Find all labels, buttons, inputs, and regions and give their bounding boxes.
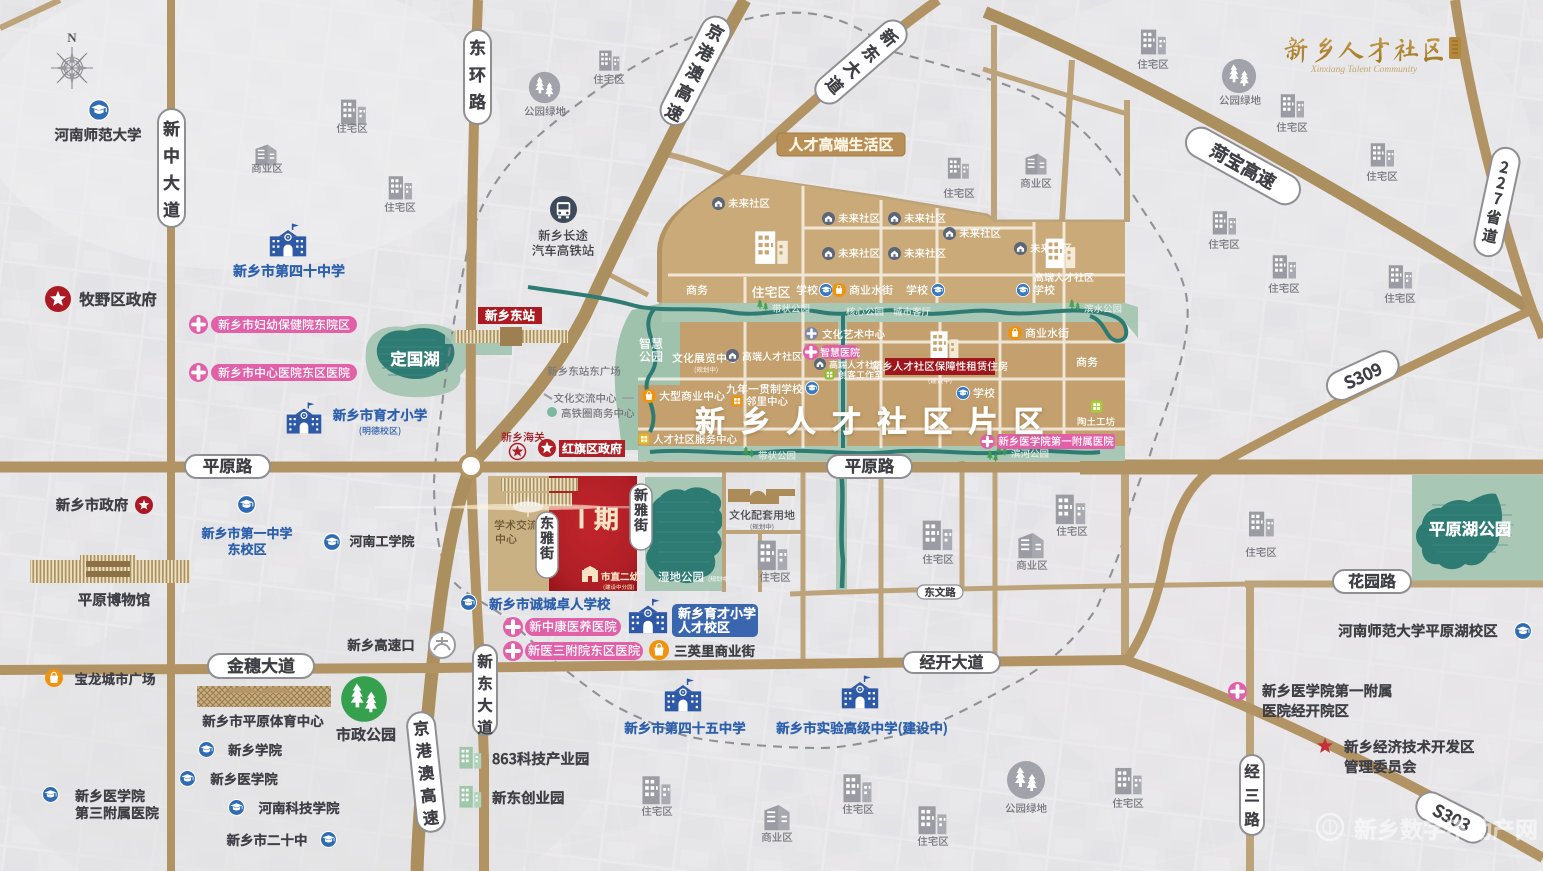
svg-text:人才校区: 人才校区 <box>677 617 730 636</box>
svg-text:智慧医院: 智慧医院 <box>820 344 860 359</box>
svg-text:住宅区: 住宅区 <box>384 200 416 215</box>
svg-text:住宅区: 住宅区 <box>759 570 791 585</box>
svg-text:汽车高铁站: 汽车高铁站 <box>532 240 595 259</box>
svg-text:东文路: 东文路 <box>924 585 956 600</box>
svg-text:新乡市诚城卓人学校: 新乡市诚城卓人学校 <box>489 593 611 613</box>
svg-text:商业水街: 商业水街 <box>849 282 893 298</box>
svg-text:未来社区: 未来社区 <box>838 211 880 226</box>
svg-text:新乡海关: 新乡海关 <box>501 429 545 445</box>
svg-text:住宅区: 住宅区 <box>1268 281 1300 296</box>
svg-text:经开大道: 经开大道 <box>918 649 983 673</box>
svg-text:湿地公园: 湿地公园 <box>658 569 704 585</box>
svg-text:新乡市育才小学: 新乡市育才小学 <box>333 404 428 424</box>
svg-text:定国湖: 定国湖 <box>389 346 440 370</box>
svg-text:新乡高速口: 新乡高速口 <box>347 634 415 654</box>
svg-text:(规划中): (规划中) <box>694 364 718 374</box>
svg-text:住宅区: 住宅区 <box>751 282 790 301</box>
svg-text:新乡东站: 新乡东站 <box>485 305 536 324</box>
svg-text:N: N <box>67 30 77 45</box>
svg-text:(建设中分园): (建设中分园) <box>603 583 634 591</box>
svg-text:863科技产业园: 863科技产业园 <box>492 748 589 769</box>
svg-text:(规划中): (规划中) <box>750 521 774 531</box>
svg-text:住宅区: 住宅区 <box>842 802 874 817</box>
svg-text:人才高端生活区: 人才高端生活区 <box>787 134 893 155</box>
svg-text:新乡市平原体育中心: 新乡市平原体育中心 <box>202 710 324 730</box>
svg-text:公园: 公园 <box>639 348 663 365</box>
svg-text:管理委员会: 管理委员会 <box>1344 756 1417 777</box>
svg-text:带状公园: 带状公园 <box>758 448 796 462</box>
svg-text:市政公园: 市政公园 <box>336 724 396 745</box>
svg-text:医院经开院区: 医院经开院区 <box>1262 700 1349 721</box>
svg-text:新医三附院东区医院: 新医三附院东区医院 <box>528 640 641 659</box>
svg-text:东环路: 东环路 <box>469 34 487 113</box>
svg-text:新雅街: 新雅街 <box>633 485 648 535</box>
svg-text:住宅区: 住宅区 <box>922 552 954 567</box>
svg-text:新乡数字不动产网: 新乡数字不动产网 <box>1354 811 1538 845</box>
svg-text:新乡市二十中: 新乡市二十中 <box>227 829 308 849</box>
svg-text:带状公园: 带状公园 <box>772 301 810 315</box>
svg-text:商业水街: 商业水街 <box>1025 325 1069 341</box>
svg-text:文化交流中心: 文化交流中心 <box>554 391 617 406</box>
svg-text:公园绿地: 公园绿地 <box>1005 801 1047 816</box>
svg-text:公园绿地: 公园绿地 <box>1219 93 1261 108</box>
svg-text:新乡市政府: 新乡市政府 <box>56 494 129 515</box>
svg-text:Ⅰ期: Ⅰ期 <box>569 506 619 534</box>
svg-text:住宅区: 住宅区 <box>943 186 975 201</box>
svg-text:三英里商业街: 三英里商业街 <box>674 640 755 660</box>
svg-text:(明德校区): (明德校区) <box>359 424 401 437</box>
svg-text:宝龙城市广场: 宝龙城市广场 <box>75 668 156 688</box>
svg-text:住宅区: 住宅区 <box>1245 545 1277 560</box>
svg-text:陶土工坊: 陶土工坊 <box>1077 414 1116 428</box>
svg-text:商务: 商务 <box>1076 354 1098 370</box>
svg-text:平原路: 平原路 <box>845 453 895 477</box>
svg-text:住宅区: 住宅区 <box>1137 57 1169 72</box>
svg-text:住宅区: 住宅区 <box>593 72 625 87</box>
svg-text:城市客厅: 城市客厅 <box>893 304 932 318</box>
svg-text:东校区: 东校区 <box>227 539 266 558</box>
svg-text:新乡市第四十五中学: 新乡市第四十五中学 <box>624 717 746 737</box>
svg-text:新乡东站东广场: 新乡东站东广场 <box>547 364 621 379</box>
svg-text:河南师范大学: 河南师范大学 <box>54 124 142 145</box>
svg-text:河南师范大学平原湖校区: 河南师范大学平原湖校区 <box>1337 620 1498 641</box>
svg-text:高端人才社区: 高端人才社区 <box>742 348 802 363</box>
svg-text:商业区: 商业区 <box>1020 176 1052 191</box>
svg-text:公园绿地: 公园绿地 <box>524 104 566 119</box>
svg-text:新乡市中心医院东区医院: 新乡市中心医院东区医院 <box>218 364 350 381</box>
svg-text:住宅区: 住宅区 <box>1208 237 1240 252</box>
svg-text:住宅区: 住宅区 <box>336 121 368 136</box>
svg-text:平原湖公园: 平原湖公园 <box>1429 516 1512 540</box>
svg-text:学校: 学校 <box>906 282 928 298</box>
svg-text:平原博物馆: 平原博物馆 <box>78 589 151 610</box>
svg-text:新乡市实验高级中学(建设中): 新乡市实验高级中学(建设中) <box>776 717 948 737</box>
svg-text:(规划中): (规划中) <box>708 574 730 583</box>
svg-text:商业区: 商业区 <box>761 830 793 845</box>
svg-text:新乡学院: 新乡学院 <box>228 739 282 759</box>
svg-text:住宅区: 住宅区 <box>917 834 949 849</box>
svg-text:新东大道: 新东大道 <box>477 650 493 738</box>
svg-text:滨水公园: 滨水公园 <box>1084 301 1122 315</box>
svg-text:金穗大道: 金穗大道 <box>226 652 295 677</box>
svg-text:住宅区: 住宅区 <box>641 804 673 819</box>
svg-text:河南工学院: 河南工学院 <box>348 531 414 550</box>
svg-text:市直二幼: 市直二幼 <box>601 569 640 583</box>
svg-text:河南科技学院: 河南科技学院 <box>258 797 340 817</box>
svg-text:高铁圈商务中心: 高铁圈商务中心 <box>561 406 635 421</box>
svg-text:住宅区: 住宅区 <box>1056 524 1088 539</box>
svg-text:住宅区: 住宅区 <box>1366 169 1398 184</box>
svg-text:住宅区: 住宅区 <box>1384 291 1416 306</box>
svg-text:(建设中): (建设中) <box>928 375 952 385</box>
svg-text:新乡医学院第一附属: 新乡医学院第一附属 <box>1262 680 1393 701</box>
svg-text:商业区: 商业区 <box>1016 558 1048 573</box>
svg-text:中心: 中心 <box>495 531 517 547</box>
svg-text:东雅街: 东雅街 <box>539 513 554 563</box>
svg-text:新乡人才社区片区: 新乡人才社区片区 <box>695 397 1059 441</box>
svg-text:新乡市第四十中学: 新乡市第四十中学 <box>233 261 345 281</box>
svg-text:新乡医学院: 新乡医学院 <box>210 768 278 788</box>
svg-text:经三路: 经三路 <box>1243 760 1260 830</box>
svg-text:第三附属医院: 第三附属医院 <box>75 803 159 823</box>
svg-text:新乡市妇幼保健院东院区: 新乡市妇幼保健院东院区 <box>218 316 350 333</box>
svg-text:住宅区: 住宅区 <box>1112 796 1144 811</box>
svg-text:核心公园: 核心公园 <box>846 304 884 318</box>
svg-text:花园路: 花园路 <box>1348 568 1397 592</box>
svg-text:住宅区: 住宅区 <box>1276 120 1308 135</box>
svg-text:牧野区政府: 牧野区政府 <box>78 288 157 310</box>
svg-text:新乡人才社区保障性租赁住房: 新乡人才社区保障性租赁住房 <box>872 359 1009 374</box>
svg-text:文化艺术中心: 文化艺术中心 <box>822 327 885 342</box>
svg-text:未来社区: 未来社区 <box>838 246 880 261</box>
svg-text:未来社区: 未来社区 <box>904 246 946 261</box>
svg-text:学校: 学校 <box>796 282 818 298</box>
svg-text:未来社区: 未来社区 <box>904 211 946 226</box>
svg-text:学校: 学校 <box>1033 282 1055 298</box>
svg-text:新中康医养医院: 新中康医养医院 <box>529 616 617 635</box>
svg-text:商务: 商务 <box>686 282 708 298</box>
svg-text:新东创业园: 新东创业园 <box>492 787 565 808</box>
svg-text:新乡人才社区: 新乡人才社区 <box>1282 36 1447 64</box>
svg-text:未来社区: 未来社区 <box>728 196 770 211</box>
svg-text:Xinxiang Talent Community: Xinxiang Talent Community <box>1310 65 1418 75</box>
svg-text:商业区: 商业区 <box>251 161 283 176</box>
svg-text:红旗区政府: 红旗区政府 <box>561 440 622 457</box>
svg-text:新乡经济技术开发区: 新乡经济技术开发区 <box>1344 736 1475 757</box>
svg-text:平原路: 平原路 <box>203 453 253 477</box>
svg-text:未来社区: 未来社区 <box>959 226 1001 241</box>
